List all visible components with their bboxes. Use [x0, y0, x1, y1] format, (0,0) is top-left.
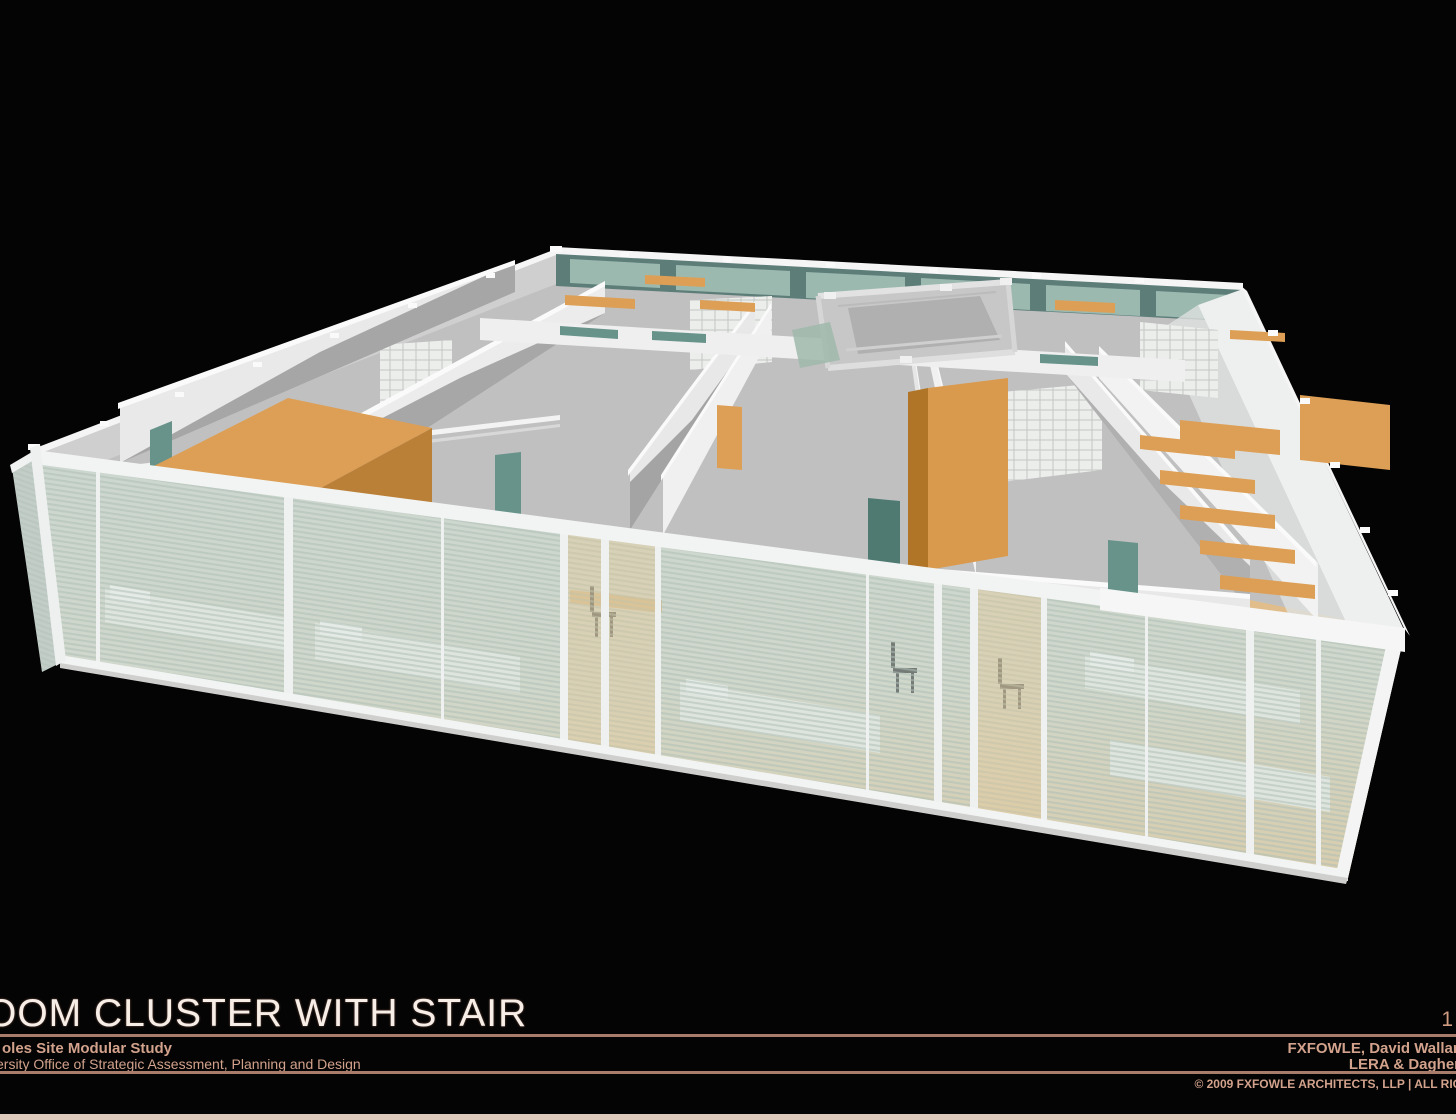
- title-rule-line: [0, 1034, 1456, 1037]
- footer-project-name: oles Site Modular Study: [2, 1040, 172, 1057]
- slide-stage: OOM CLUSTER WITH STAIR 1 oles Site Modul…: [0, 0, 1456, 1120]
- footer-rule-line: [0, 1071, 1456, 1074]
- footer-client-name: ersity Office of Strategic Assessment, P…: [0, 1056, 361, 1072]
- page-title: OOM CLUSTER WITH STAIR: [0, 992, 527, 1036]
- bottom-edge-strip: [0, 1114, 1456, 1120]
- page-number: 1: [1441, 1008, 1453, 1032]
- copyright-notice: © 2009 FXFOWLE ARCHITECTS, LLP | ALL RIG: [1194, 1077, 1456, 1091]
- presentation-slide: { "slide": { "title": "OOM CLUSTER WITH …: [0, 0, 1456, 1120]
- footer-credit-architect: FXFOWLE, David Wallan: [1288, 1040, 1456, 1057]
- rendering-3d: [0, 0, 1456, 990]
